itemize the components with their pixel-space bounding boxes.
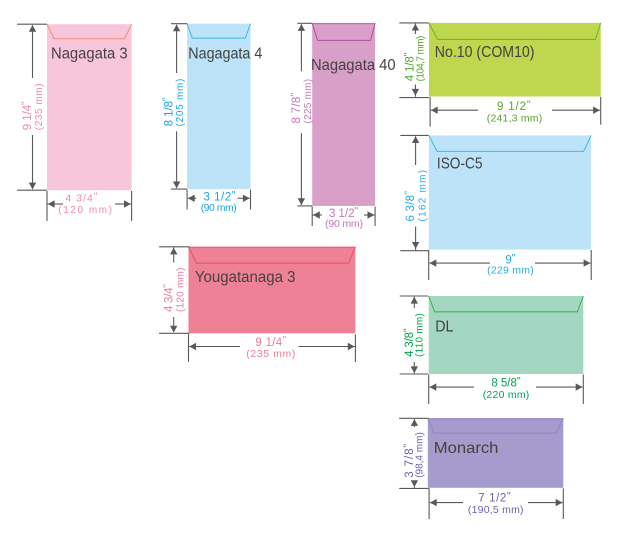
svg-text:(190,5 mm): (190,5 mm) [468,504,524,516]
svg-text:8 7/8": 8 7/8" [289,92,303,123]
svg-text:(241,3 mm): (241,3 mm) [487,112,542,124]
svg-text:Monarch: Monarch [434,440,499,457]
svg-text:9 1/4": 9 1/4" [255,335,286,349]
svg-text:Yougatanaga 3: Yougatanaga 3 [195,269,296,286]
svg-text:(110 mm): (110 mm) [414,313,425,357]
svg-text:(104,7 mm): (104,7 mm) [416,36,427,82]
svg-text:(90 mm): (90 mm) [325,218,363,230]
svg-text:Nagagata 4: Nagagata 4 [188,46,262,63]
svg-text:Nagagata 40: Nagagata 40 [311,57,396,74]
svg-text:9 1/4": 9 1/4" [20,101,34,130]
svg-text:6 3/8": 6 3/8" [403,191,417,222]
svg-text:(229 mm): (229 mm) [487,265,534,277]
svg-text:(225 mm): (225 mm) [303,79,314,124]
svg-text:(90 mm): (90 mm) [201,202,237,214]
svg-text:(98,4 mm): (98,4 mm) [414,432,425,478]
svg-text:(235 mm): (235 mm) [246,348,295,360]
svg-text:(162 mm): (162 mm) [417,170,428,222]
svg-text:DL: DL [435,319,454,336]
svg-text:8 5/8": 8 5/8" [491,375,520,389]
svg-text:(205 mm): (205 mm) [175,79,186,127]
svg-text:(235 mm): (235 mm) [34,83,45,130]
svg-text:8 1/8": 8 1/8" [161,97,175,126]
svg-text:4 1/8": 4 1/8" [402,52,416,81]
svg-text:9 1/2": 9 1/2" [497,99,531,113]
svg-text:(120 mm): (120 mm) [58,205,112,216]
svg-text:No.10 (COM10): No.10 (COM10) [435,44,535,61]
svg-text:4 3/4": 4 3/4" [161,284,175,312]
svg-text:4 3/4": 4 3/4" [65,192,97,205]
svg-text:Nagagata 3: Nagagata 3 [51,45,128,62]
svg-text:7 1/2": 7 1/2" [478,490,511,504]
svg-text:(220 mm): (220 mm) [483,389,530,401]
svg-text:(120 mm): (120 mm) [176,268,187,313]
svg-text:ISO-C5: ISO-C5 [437,156,483,173]
